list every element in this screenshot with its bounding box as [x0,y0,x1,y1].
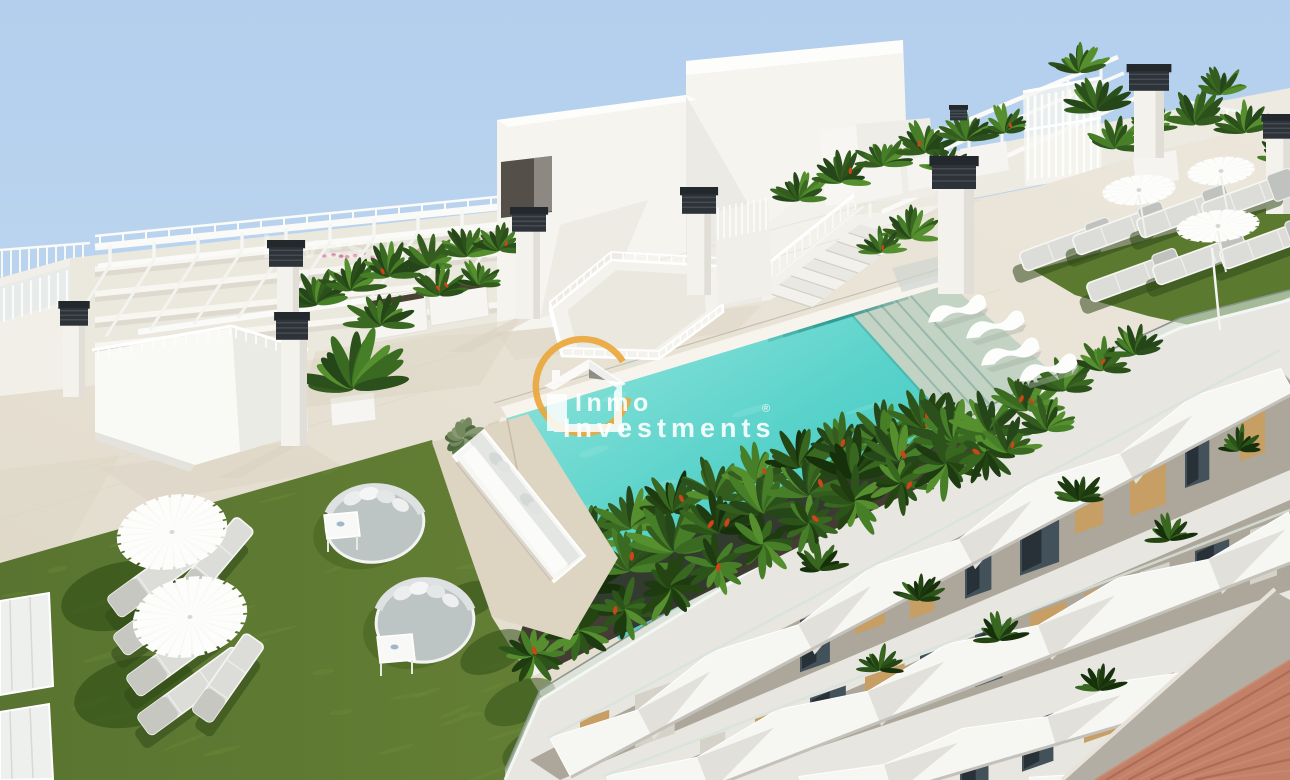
svg-text:®: ® [762,403,770,415]
svg-text:Investments: Investments [563,413,776,443]
